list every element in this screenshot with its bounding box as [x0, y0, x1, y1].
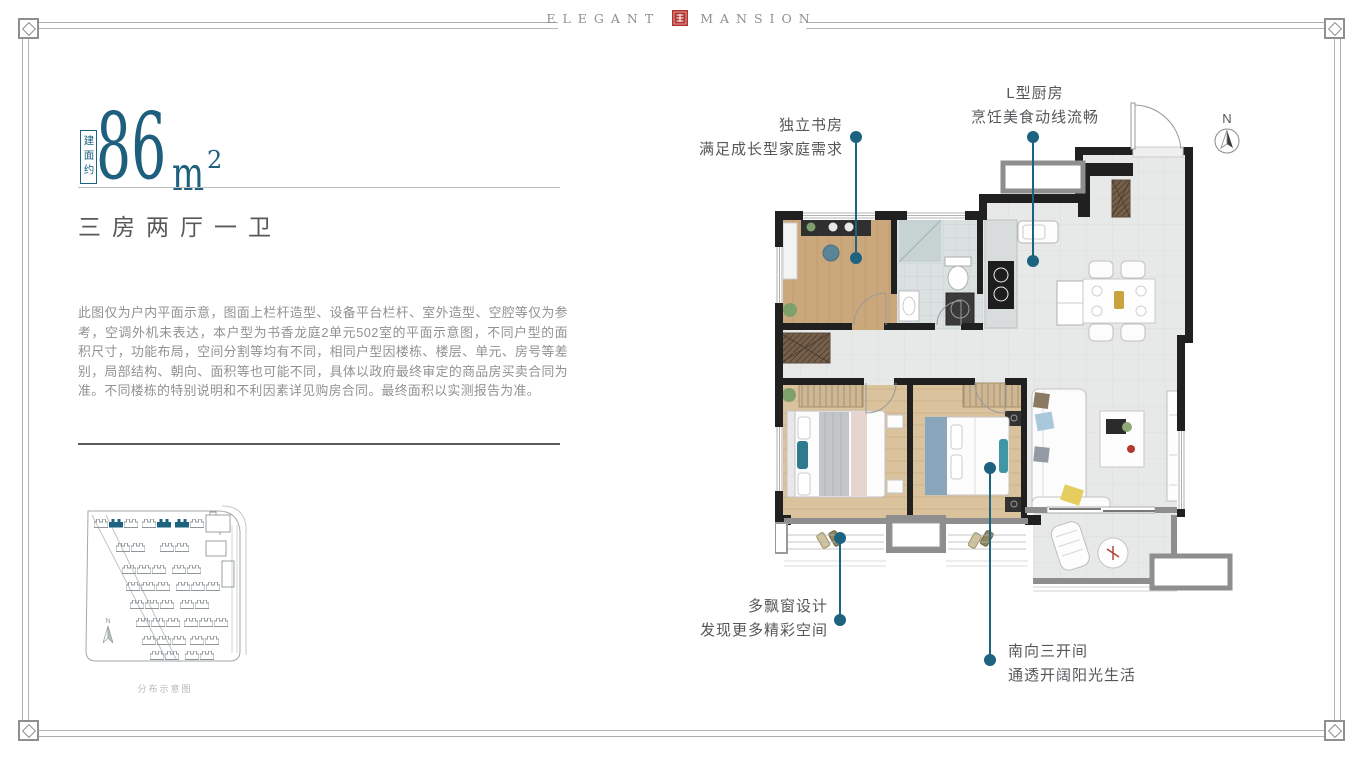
north-arrow-icon: N: [1215, 111, 1239, 153]
disclaimer-text: 此图仅为户内平面示意，图面上栏杆造型、设备平台栏杆、室外造型、空腔等仅为参考，空…: [78, 303, 568, 401]
annotation-bay-line2: 发现更多精彩空间: [600, 619, 828, 643]
site-plan-caption: 分布示意图: [72, 682, 258, 695]
area-prefix-badge: 建面约: [80, 130, 97, 184]
annotation-bay-window: 多飘窗设计 发现更多精彩空间: [600, 595, 828, 643]
highlighted-buildings: [109, 519, 189, 528]
floor-plan: N: [775, 95, 1255, 695]
entry-door: [1135, 105, 1181, 149]
annotation-south: 南向三开间 通透开阔阳光生活: [1008, 640, 1238, 688]
corner-ornament-icon: [1324, 720, 1345, 741]
svg-text:N: N: [105, 618, 110, 625]
annotation-south-line2: 通透开阔阳光生活: [1008, 664, 1238, 688]
equipment-platform-top: [1003, 163, 1083, 191]
divider-line-dark: [78, 443, 560, 445]
annotation-study: 独立书房 满足成长型家庭需求: [615, 114, 843, 162]
annotation-study-line1: 独立书房: [615, 114, 843, 138]
brand-name-right: MANSION: [700, 11, 816, 26]
area-value: 86: [96, 101, 166, 193]
entry-threshold: [1133, 147, 1183, 157]
bay-pillar-inset: [892, 523, 940, 547]
corner-ornament-icon: [18, 720, 39, 741]
site-north-icon: N: [103, 618, 113, 643]
divider-line: [78, 187, 560, 188]
brand-seal-icon: [672, 10, 688, 26]
brand-name-left: ELEGANT: [546, 11, 660, 26]
equipment-platform-bottom: [1152, 556, 1230, 588]
annotation-kitchen-line1: L型厨房: [933, 82, 1137, 106]
brand-logo: ELEGANT MANSION: [0, 10, 1363, 26]
annotation-study-line2: 满足成长型家庭需求: [615, 138, 843, 162]
annotation-south-line1: 南向三开间: [1008, 640, 1238, 664]
layout-title: 三房两厅一卫: [78, 208, 282, 242]
area-unit: m: [172, 151, 204, 198]
site-plan: N: [72, 503, 258, 675]
area-exponent: 2: [207, 146, 222, 174]
svg-text:N: N: [1222, 111, 1231, 126]
site-road: [92, 515, 237, 659]
annotation-kitchen: L型厨房 烹饪美食动线流畅: [933, 82, 1137, 130]
brochure-page: ELEGANT MANSION 建面约 86 m 2 三房两厅一卫 此图仅为户内…: [0, 0, 1363, 759]
annotation-bay-line1: 多飘窗设计: [600, 595, 828, 619]
annotation-kitchen-line2: 烹饪美食动线流畅: [933, 106, 1137, 130]
